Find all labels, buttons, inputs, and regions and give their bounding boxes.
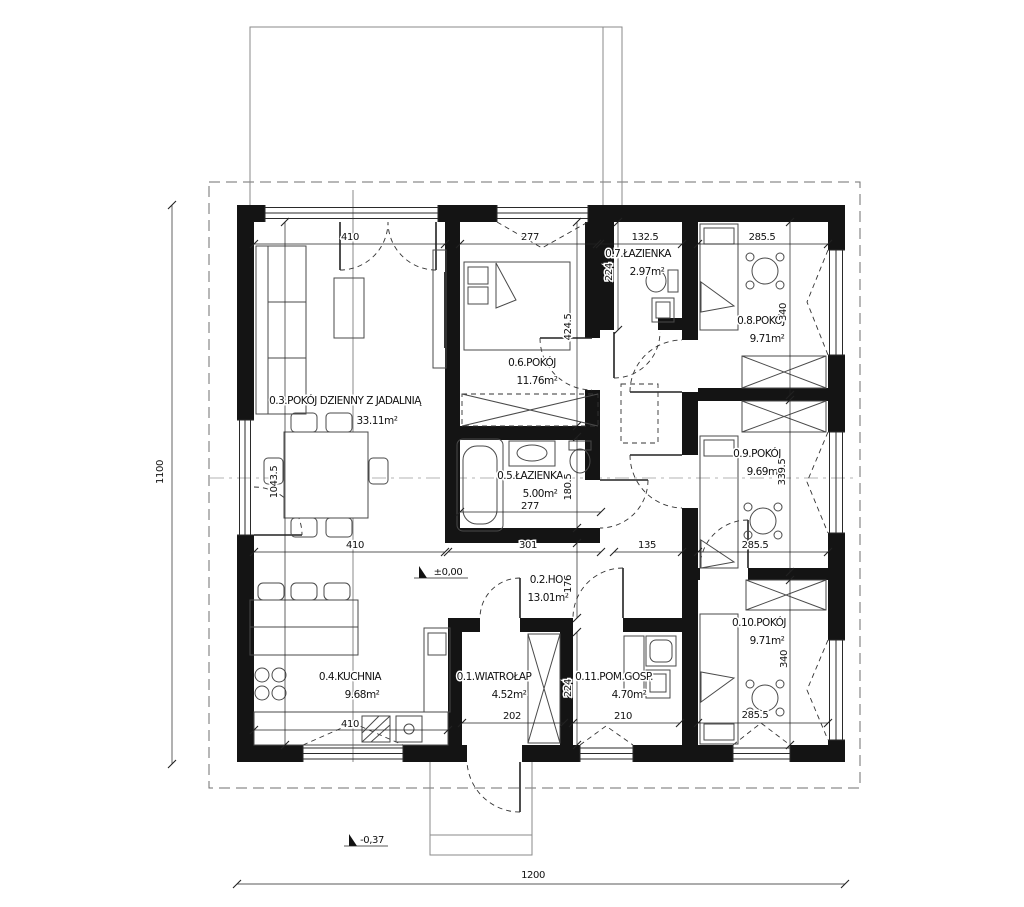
room-0-11-area: 4.70m²	[612, 689, 647, 701]
sink-bath5	[509, 441, 555, 466]
coffee-table	[334, 278, 364, 338]
cooktop	[255, 668, 286, 700]
window-room10-bottom	[733, 723, 790, 762]
room-0-11-name: 0.11.POM.GOSP.	[575, 671, 653, 683]
dim-top-living: 410	[341, 232, 359, 243]
dim-top-bath7: 132.5	[632, 232, 659, 243]
room-0-7-area: 2.97m²	[630, 266, 665, 278]
room-0-6-name: 0.6.POKÓJ	[508, 356, 556, 369]
room-0-10-area: 9.71m²	[750, 635, 785, 647]
door-pomgosp	[573, 568, 623, 618]
room-0-5-name: 0.5.ŁAZIENKA	[497, 470, 564, 482]
wardrobe-room9-x	[742, 401, 826, 432]
dim-bottom-kitchen: 410	[341, 719, 359, 730]
room-0-3-area: 33.11m²	[357, 415, 398, 427]
window-room6-top	[497, 205, 588, 248]
room-0-7-name: 0.7.ŁAZIENKA	[605, 248, 672, 260]
window-pomgosp-bottom	[580, 726, 633, 762]
window-room9-right	[807, 432, 845, 533]
dim-bottom-wiatrolap: 202	[503, 711, 521, 722]
desk-chair-room9	[744, 503, 782, 539]
hall-cabinet	[621, 384, 658, 443]
tv-cabinet	[433, 250, 447, 368]
door-wiatrolap	[480, 578, 520, 618]
floor-plan-page: 0.3.POKÓJ DZIENNY Z JADALNIĄ 33.11m² 0.6…	[0, 0, 1024, 907]
window-living-top	[265, 205, 438, 222]
room-0-10-name: 0.10.POKÓJ	[732, 616, 786, 629]
dim-room10-height: 340	[779, 650, 790, 668]
room-0-4-name: 0.4.KUCHNIA	[319, 671, 383, 683]
porch-outline	[430, 762, 532, 855]
dim-mid-living: 410	[346, 540, 364, 551]
bed-room6	[464, 262, 570, 350]
furniture	[250, 224, 826, 745]
dim-room9-height: 339.5	[777, 459, 788, 486]
dim-bath7-height: 224	[604, 263, 615, 281]
dim-bath5-width: 277	[521, 501, 539, 512]
door-bath5	[600, 480, 648, 528]
room-0-5-area: 5.00m²	[523, 488, 558, 500]
room-0-1-name: 0.1.WIATROŁAP	[457, 671, 532, 683]
room-0-6-area: 11.76m²	[517, 375, 558, 387]
room-0-4-area: 9.68m²	[345, 689, 380, 701]
level-ground-symbol	[419, 566, 427, 578]
dim-bottom-pomgosp: 210	[614, 711, 632, 722]
dim-mid-corridor: 135	[638, 540, 656, 551]
dim-bath5-height: 180.5	[563, 474, 574, 501]
door-room8	[630, 340, 682, 392]
window-room8-right	[807, 250, 845, 355]
room-0-1-area: 4.52m²	[492, 689, 527, 701]
dim-mid-room9: 285.5	[742, 540, 769, 551]
desk-chair-room8	[746, 253, 784, 289]
dim-total-height: 1100	[155, 460, 166, 484]
dim-room6-height: 424.5	[563, 314, 574, 341]
dim-total-width: 1200	[521, 870, 545, 881]
sofa	[256, 246, 306, 414]
room-0-9-name: 0.9.POKÓJ	[733, 447, 781, 460]
dim-mid-bath5: 301	[519, 540, 537, 551]
wardrobe-room8-x	[742, 356, 826, 388]
floor-plan-svg: 0.3.POKÓJ DZIENNY Z JADALNIĄ 33.11m² 0.6…	[0, 0, 1024, 907]
level-ground-text: ±0,00	[434, 567, 463, 578]
dim-room8-height: 340	[778, 303, 789, 321]
room-0-8-area: 9.71m²	[750, 333, 785, 345]
entrance-door	[467, 762, 520, 812]
door-room9	[630, 455, 682, 508]
terrace-outline	[250, 27, 622, 205]
bathtub-bath5	[457, 439, 503, 531]
room-0-3-name: 0.3.POKÓJ DZIENNY Z JADALNIĄ	[269, 394, 422, 407]
dim-living-height: 1043.5	[269, 466, 280, 499]
wardrobe-wiatrolap-x	[528, 634, 560, 743]
level-outside-symbol	[349, 834, 357, 846]
dim-top-room8: 285.5	[749, 232, 776, 243]
french-door-living	[340, 222, 436, 270]
window-living-left	[237, 420, 254, 535]
bed-room8	[700, 224, 738, 330]
dim-bottom-room10: 285.5	[742, 710, 769, 721]
door-bath7	[614, 332, 660, 378]
dim-wiatrolap-height: 224	[563, 679, 574, 697]
wall-living-room6	[445, 222, 460, 543]
dim-top-room6: 277	[521, 232, 539, 243]
bed-room10	[700, 614, 738, 744]
kitchen-island	[250, 583, 358, 655]
dining-set	[264, 413, 388, 537]
wardrobe-room10-x	[746, 580, 826, 610]
wardrobe-room6-x	[462, 394, 598, 426]
dim-hol-height: 176	[563, 575, 574, 593]
level-outside-text: -0,37	[360, 835, 384, 846]
